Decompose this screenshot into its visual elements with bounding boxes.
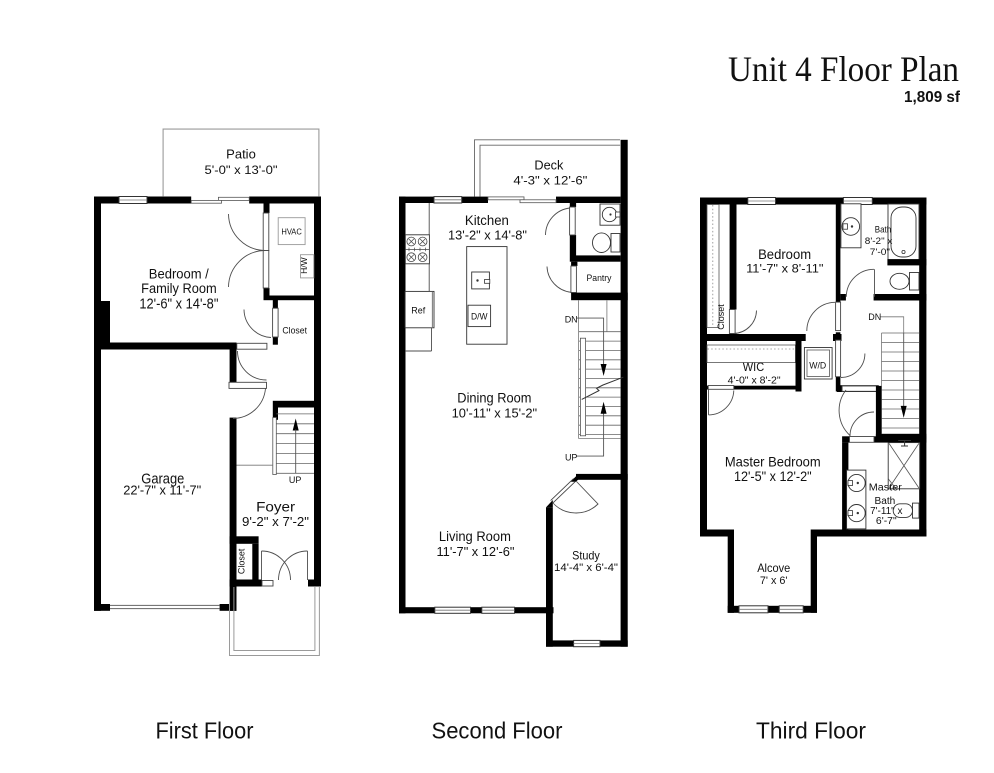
- svg-text:Deck: Deck: [534, 158, 563, 173]
- svg-text:Second Floor: Second Floor: [432, 718, 563, 744]
- svg-text:6'-7": 6'-7": [876, 516, 897, 527]
- svg-text:12'-6" x 14'-8": 12'-6" x 14'-8": [139, 297, 218, 313]
- svg-text:Bedroom /: Bedroom /: [149, 266, 209, 281]
- svg-text:Living Room: Living Room: [439, 528, 511, 544]
- svg-text:Patio: Patio: [226, 147, 256, 162]
- svg-text:14'-4" x 6'-4": 14'-4" x 6'-4": [554, 562, 618, 574]
- svg-text:Master: Master: [869, 483, 903, 494]
- svg-text:Closet: Closet: [282, 326, 307, 336]
- svg-text:Closet: Closet: [237, 548, 247, 574]
- svg-text:7' x 6': 7' x 6': [760, 575, 788, 587]
- svg-text:Bedroom: Bedroom: [758, 247, 811, 262]
- svg-text:8'-2" x: 8'-2" x: [865, 236, 893, 246]
- svg-text:11'-7" x 8'-11": 11'-7" x 8'-11": [746, 262, 823, 276]
- svg-text:Kitchen: Kitchen: [465, 213, 509, 228]
- svg-text:9'-2" x 7'-2": 9'-2" x 7'-2": [242, 514, 309, 529]
- svg-text:Pantry: Pantry: [587, 273, 612, 283]
- svg-text:1,809 sf: 1,809 sf: [904, 89, 961, 106]
- svg-text:10'-11" x 15'-2": 10'-11" x 15'-2": [452, 405, 538, 420]
- svg-text:DN: DN: [868, 312, 881, 322]
- svg-text:Closet: Closet: [716, 304, 726, 330]
- svg-text:Study: Study: [572, 549, 600, 563]
- svg-text:Master Bedroom: Master Bedroom: [725, 455, 821, 470]
- svg-text:Unit 4 Floor Plan: Unit 4 Floor Plan: [728, 49, 959, 89]
- svg-text:Bath: Bath: [875, 224, 891, 234]
- svg-text:22'-7" x 11'-7": 22'-7" x 11'-7": [123, 483, 201, 498]
- svg-text:HVAC: HVAC: [281, 227, 302, 237]
- svg-text:UP: UP: [565, 452, 578, 462]
- svg-text:First Floor: First Floor: [156, 718, 254, 744]
- svg-text:WIC: WIC: [743, 362, 764, 374]
- svg-text:5'-0" x 13'-0": 5'-0" x 13'-0": [205, 163, 278, 177]
- svg-text:4'-0" x 8'-2": 4'-0" x 8'-2": [728, 375, 781, 386]
- svg-text:13'-2" x 14'-8": 13'-2" x 14'-8": [448, 228, 527, 243]
- svg-text:Ref: Ref: [411, 306, 425, 316]
- svg-text:DN: DN: [565, 314, 578, 324]
- svg-text:Dining Room: Dining Room: [457, 390, 531, 406]
- svg-text:7'-0": 7'-0": [870, 247, 890, 257]
- svg-text:Family Room: Family Room: [141, 281, 217, 296]
- svg-text:11'-7" x 12'-6": 11'-7" x 12'-6": [437, 544, 515, 559]
- svg-text:Foyer: Foyer: [256, 499, 295, 515]
- svg-text:4'-3" x 12'-6": 4'-3" x 12'-6": [513, 174, 587, 188]
- svg-text:Alcove: Alcove: [757, 561, 790, 575]
- svg-text:W/D: W/D: [809, 361, 826, 371]
- svg-text:12'-5" x 12'-2": 12'-5" x 12'-2": [734, 469, 812, 484]
- svg-text:D/W: D/W: [471, 312, 488, 322]
- svg-text:UP: UP: [289, 475, 302, 485]
- svg-text:H/W: H/W: [299, 257, 309, 274]
- svg-text:Third Floor: Third Floor: [756, 718, 866, 744]
